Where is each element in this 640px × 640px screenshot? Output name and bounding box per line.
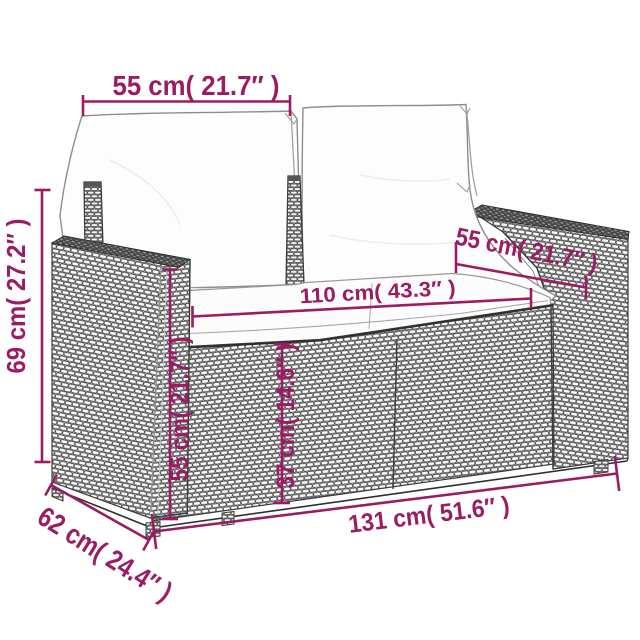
svg-text:55 cm( 21.7″ ): 55 cm( 21.7″ ): [113, 70, 280, 101]
svg-text:55 cm( 21.7″ ): 55 cm( 21.7″ ): [166, 337, 194, 482]
svg-text:69 cm( 27.2″ ): 69 cm( 27.2″ ): [1, 219, 31, 374]
svg-text:37 cm( 14.6″ ): 37 cm( 14.6″ ): [272, 344, 300, 489]
